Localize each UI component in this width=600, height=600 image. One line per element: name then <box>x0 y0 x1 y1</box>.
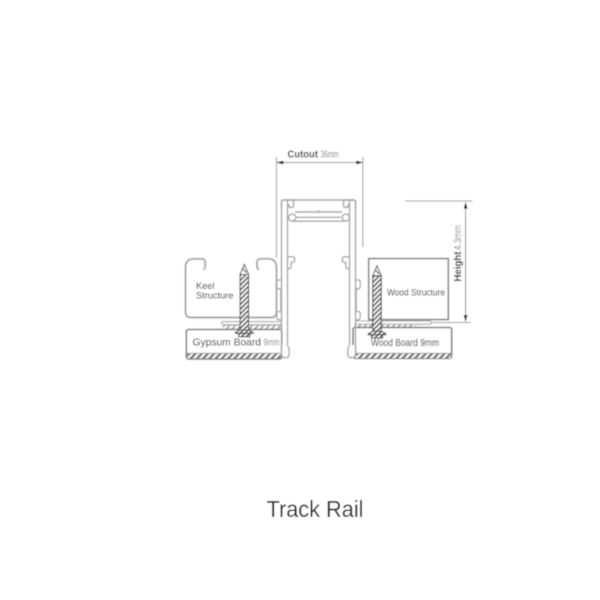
svg-text:Track Rail: Track Rail <box>267 496 364 522</box>
svg-text:Cutout: Cutout <box>288 149 319 161</box>
svg-text:Gypsum Board: Gypsum Board <box>193 337 262 349</box>
svg-text:Height: Height <box>452 251 464 281</box>
svg-text:Wood Board 9mm: Wood Board 9mm <box>371 337 439 349</box>
svg-text:4.3mm: 4.3mm <box>453 225 464 250</box>
svg-text:Structure: Structure <box>196 291 234 302</box>
svg-text:36mm: 36mm <box>321 150 339 161</box>
svg-text:Wood Structure: Wood Structure <box>387 288 445 299</box>
svg-text:9mm: 9mm <box>264 338 280 349</box>
